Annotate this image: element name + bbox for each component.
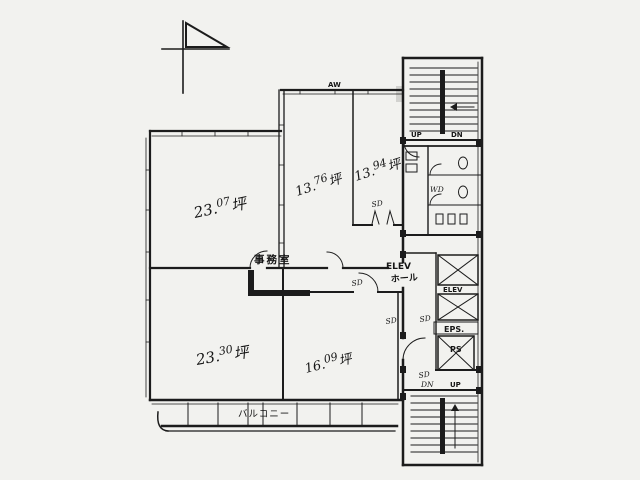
dn-top-label: DN — [451, 131, 463, 139]
elev-hall-label-line2: ホール — [390, 272, 418, 285]
north-arrow-icon — [162, 21, 229, 93]
ps-label: PS — [450, 345, 462, 354]
floor-plan-drawing: 23.07坪 13.76坪 13.94坪 23.30坪 16.09坪 事務室 バ… — [0, 0, 640, 480]
area-label-lower-left: 23.30坪 — [193, 340, 252, 370]
elev-shaft-label: ELEV — [443, 286, 463, 294]
area-label-upper-left: 23.07坪 — [191, 191, 250, 223]
sd-vestibule-label: SD — [371, 199, 383, 209]
office-block-walls — [146, 90, 403, 404]
aw-window-label: AW — [328, 81, 341, 89]
staircase-top — [403, 68, 482, 157]
area-label-upper-middle: 13.76坪 — [292, 166, 345, 200]
eps-label: EPS. — [444, 325, 464, 334]
elevator-core — [403, 253, 482, 370]
area-label-lower-middle: 16.09坪 — [302, 346, 355, 377]
sd-core-lower-label: SD — [418, 370, 430, 380]
area-label-upper-right: 13.94坪 — [351, 151, 404, 185]
elev-hall-label-line1: ELEV — [386, 262, 411, 272]
balcony-label: バルコニー — [238, 409, 290, 420]
room-area-labels: 23.07坪 13.76坪 13.94坪 23.30坪 16.09坪 — [191, 151, 405, 377]
staircase-bottom — [403, 390, 482, 454]
dn-bottom-label: DN — [420, 380, 434, 389]
up-bottom-label: UP — [450, 381, 461, 389]
sd-corridor-label: SD — [351, 278, 363, 288]
up-top-label: UP — [411, 131, 422, 139]
floor-plan-page: 23.07坪 13.76坪 13.94坪 23.30坪 16.09坪 事務室 バ… — [0, 0, 640, 480]
sd-core-upper-label: SD — [419, 314, 431, 324]
office-label: 事務室 — [254, 253, 292, 266]
sd-hall-label: SD — [385, 316, 397, 326]
wd-label: WD — [430, 185, 444, 194]
